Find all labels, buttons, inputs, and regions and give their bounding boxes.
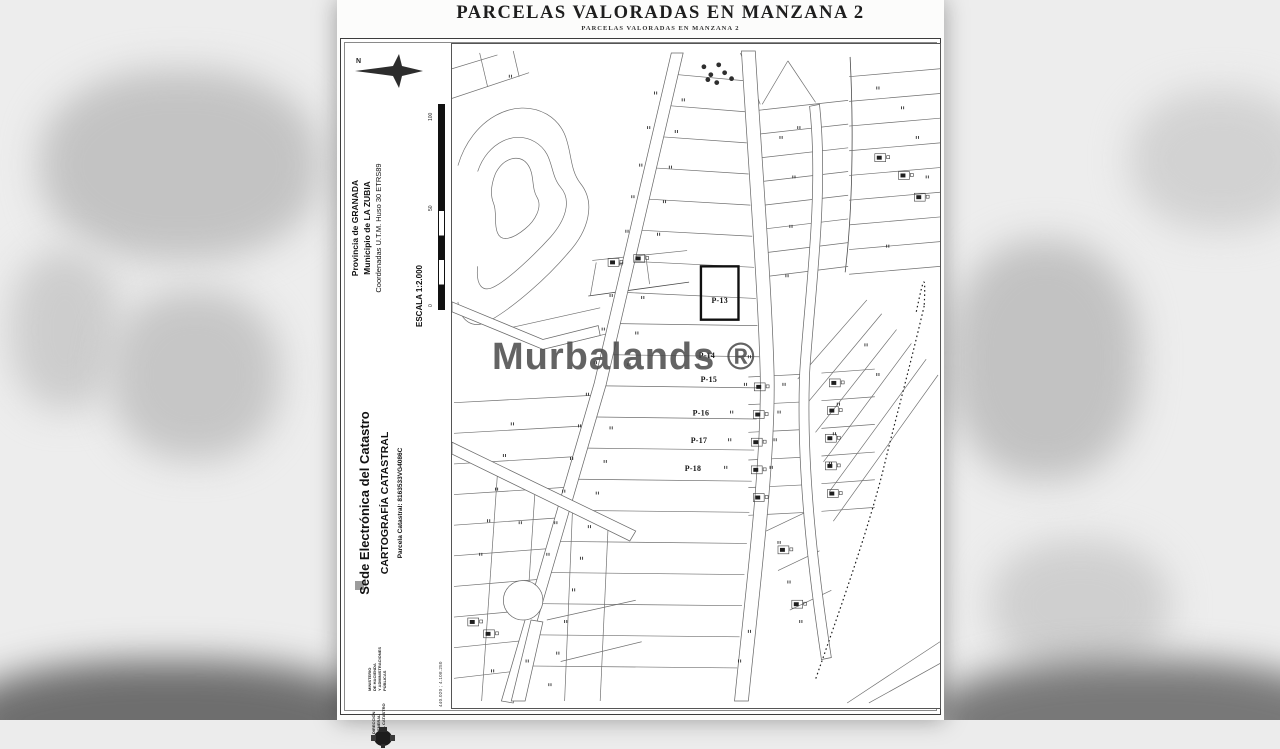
page-subtitle: PARCELAS VALORADAS EN MANZANA 2 [377, 25, 944, 32]
background-blur-blob [110, 290, 280, 460]
cadastral-document: PARCELAS VALORADAS EN MANZANA 2 PARCELAS… [337, 0, 944, 720]
scale-label: ESCALA 1:2.000 [415, 241, 424, 351]
north-compass-icon: N [353, 49, 427, 93]
utm-label: Coordenadas U.T.M. Huso 30 ETRS89 [373, 99, 385, 357]
parcel-label-p16: P-16 [693, 409, 710, 418]
north-label: N [356, 58, 361, 65]
municipality-label: Municipio de LA ZUBIA [361, 99, 373, 357]
background-blur-blob [1130, 90, 1280, 230]
province-label: Provincia de GRANADA [349, 99, 361, 357]
page-title: PARCELAS VALORADAS EN MANZANA 2 [377, 3, 944, 24]
frame-coordinate-bottom: 440.020 ; 4.108.250 [438, 661, 443, 707]
background-blur-blob [40, 70, 320, 260]
ministry-logo-text: MINISTERIO DE HACIENDA Y ADMINISTRACIONE… [367, 641, 387, 691]
watermark: Murbalands ® [492, 336, 756, 379]
highlighted-parcel-p13 [701, 266, 739, 319]
scale-tick-100: 100 [428, 113, 434, 121]
background-blur-blob [0, 660, 380, 720]
scale-tick-0: 0 [428, 304, 434, 307]
scale-bar [438, 104, 445, 310]
scale-tick-50: 50 [428, 205, 434, 211]
background-blur-blob [10, 250, 120, 410]
sede-electronica-label: Sede Electrónica del Catastro [357, 367, 372, 639]
parcel-reference: Parcela Catastral: 8163533VG4086C [397, 367, 404, 639]
parcel-label-p18: P-18 [685, 464, 702, 473]
spain-coat-of-arms-icon [369, 725, 397, 749]
cartografia-label: CARTOGRAFÍA CATASTRAL [379, 367, 391, 639]
parcel-label-p17: P-17 [691, 436, 708, 445]
catastro-branding: Sede Electrónica del Catastro CARTOGRAFÍ… [357, 367, 404, 639]
background-blur-blob [990, 540, 1170, 670]
parcel-label-p13: P-13 [711, 296, 728, 305]
background-blur-blob [950, 240, 1140, 480]
location-header: Provincia de GRANADA Municipio de LA ZUB… [349, 99, 385, 357]
background-blur-blob [930, 660, 1280, 720]
